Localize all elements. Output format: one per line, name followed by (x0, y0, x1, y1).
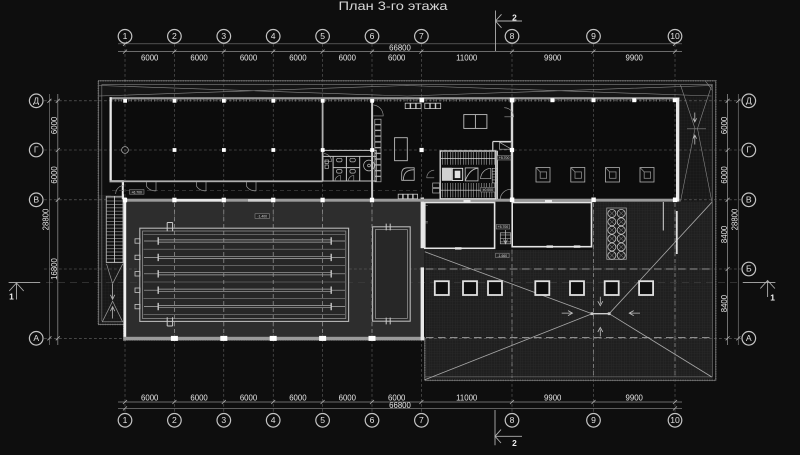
svg-text:3: 3 (221, 31, 226, 41)
svg-text:10: 10 (670, 31, 680, 41)
svg-text:6000: 6000 (388, 54, 406, 63)
svg-text:В: В (33, 195, 39, 205)
svg-text:3: 3 (221, 415, 226, 425)
svg-text:66800: 66800 (389, 44, 411, 53)
svg-text:6000: 6000 (240, 393, 258, 402)
svg-text:А: А (33, 333, 39, 343)
svg-text:6000: 6000 (141, 393, 159, 402)
svg-text:6000: 6000 (289, 54, 307, 63)
svg-text:11000: 11000 (456, 393, 478, 402)
svg-text:Г: Г (34, 145, 39, 155)
svg-text:9: 9 (591, 415, 596, 425)
svg-text:Д: Д (746, 96, 752, 106)
svg-text:+5.700: +5.700 (499, 156, 510, 160)
svg-text:16800: 16800 (50, 257, 59, 279)
svg-text:Д: Д (33, 96, 39, 106)
svg-text:6000: 6000 (190, 54, 208, 63)
svg-text:1: 1 (770, 293, 775, 303)
svg-text:9900: 9900 (544, 54, 562, 63)
svg-text:6: 6 (370, 31, 375, 41)
svg-text:1: 1 (9, 292, 14, 302)
svg-text:План 3-го этажа: План 3-го этажа (339, 0, 448, 13)
svg-text:6000: 6000 (339, 393, 357, 402)
svg-text:5: 5 (320, 31, 325, 41)
svg-text:-1.660: -1.660 (497, 254, 507, 258)
svg-text:6000: 6000 (339, 54, 357, 63)
svg-text:2: 2 (172, 31, 177, 41)
svg-text:6000: 6000 (289, 393, 307, 402)
svg-text:2: 2 (172, 415, 177, 425)
svg-text:А: А (746, 333, 752, 343)
svg-text:6000: 6000 (190, 393, 208, 402)
svg-text:6: 6 (370, 415, 375, 425)
svg-text:Б: Б (746, 264, 752, 274)
svg-text:9900: 9900 (626, 393, 644, 402)
svg-text:1: 1 (123, 31, 128, 41)
svg-text:4: 4 (271, 31, 276, 41)
svg-text:11000: 11000 (456, 54, 478, 63)
svg-text:9: 9 (591, 31, 596, 41)
svg-text:+5.700: +5.700 (498, 225, 509, 229)
svg-text:10: 10 (670, 415, 680, 425)
svg-text:6000: 6000 (240, 54, 258, 63)
svg-text:8400: 8400 (720, 225, 729, 243)
svg-text:5: 5 (320, 415, 325, 425)
svg-text:7: 7 (419, 415, 424, 425)
svg-text:6000: 6000 (720, 166, 729, 184)
svg-text:9900: 9900 (626, 54, 644, 63)
svg-text:+6.700: +6.700 (131, 190, 142, 194)
svg-text:7: 7 (419, 31, 424, 41)
svg-text:1: 1 (123, 415, 128, 425)
svg-text:8: 8 (510, 415, 515, 425)
svg-text:Г: Г (746, 145, 751, 155)
svg-text:6000: 6000 (50, 116, 59, 134)
svg-text:-1.400: -1.400 (257, 215, 267, 219)
svg-text:9900: 9900 (544, 393, 562, 402)
svg-text:8400: 8400 (720, 294, 729, 312)
svg-text:6000: 6000 (720, 116, 729, 134)
svg-text:±0.000: ±0.000 (483, 188, 493, 192)
svg-text:6000: 6000 (388, 393, 406, 402)
svg-text:2: 2 (512, 438, 517, 448)
svg-text:28800: 28800 (42, 208, 51, 230)
svg-text:6000: 6000 (141, 54, 159, 63)
svg-text:2: 2 (512, 13, 517, 23)
svg-text:6000: 6000 (50, 166, 59, 184)
svg-text:В: В (746, 195, 752, 205)
svg-text:28800: 28800 (731, 208, 740, 230)
svg-text:8: 8 (510, 31, 515, 41)
svg-text:4: 4 (271, 415, 276, 425)
